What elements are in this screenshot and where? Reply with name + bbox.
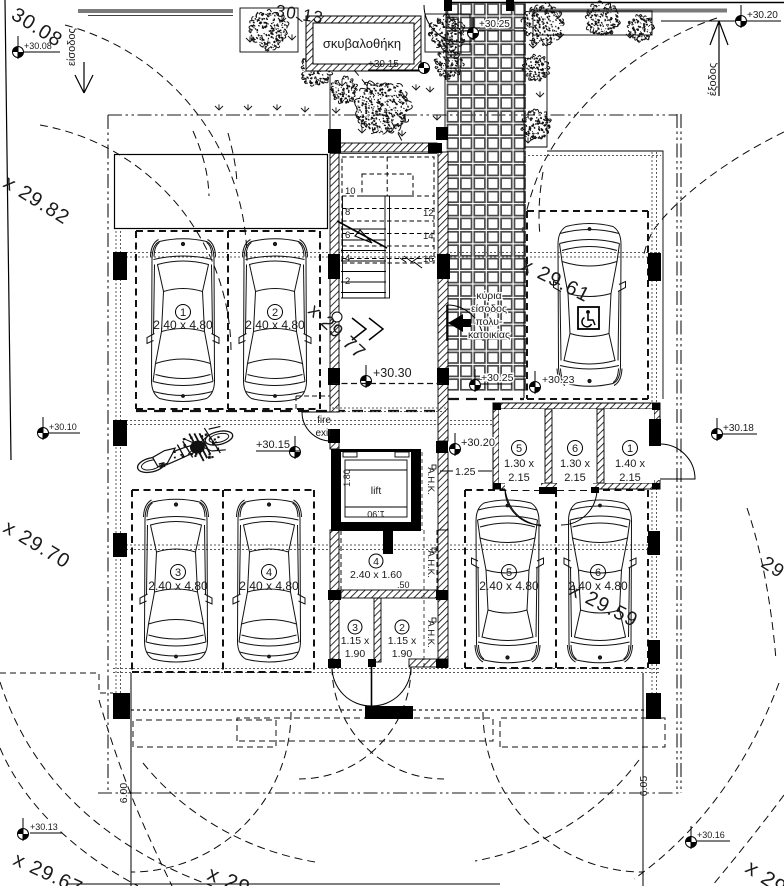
svg-text:Α.Η.Κ.: Α.Η.Κ. [425, 620, 436, 647]
svg-text:+30.10: +30.10 [49, 422, 77, 432]
svg-text:3: 3 [352, 622, 358, 634]
svg-text:2: 2 [345, 276, 350, 287]
svg-text:4: 4 [345, 253, 350, 264]
svg-text:2.40 x 4.80: 2.40 x 4.80 [153, 318, 213, 332]
svg-text:6: 6 [595, 567, 601, 579]
svg-text:+30.20: +30.20 [747, 10, 778, 21]
svg-text:+30.16: +30.16 [697, 830, 725, 840]
svg-text:6.05: 6.05 [638, 776, 650, 797]
svg-text:4: 4 [266, 567, 272, 579]
svg-text:2.40 x 4.80: 2.40 x 4.80 [148, 579, 208, 593]
svg-text:+30.13: +30.13 [30, 822, 58, 832]
svg-text:1.80: 1.80 [342, 469, 352, 487]
svg-text:2.15: 2.15 [619, 472, 640, 484]
svg-text:+30.15: +30.15 [256, 439, 290, 451]
svg-text:5: 5 [516, 443, 522, 455]
svg-text:πολυ-: πολυ- [476, 316, 503, 328]
svg-text:2.40 x 4.80: 2.40 x 4.80 [479, 579, 539, 593]
svg-text:σκυβαλοθήκη: σκυβαλοθήκη [323, 36, 401, 51]
svg-text:+30.30: +30.30 [373, 366, 412, 380]
svg-text:Α.Η.Κ.: Α.Η.Κ. [425, 550, 436, 577]
svg-text:2.15: 2.15 [508, 472, 529, 484]
svg-text:είσοδος: είσοδος [471, 303, 507, 315]
svg-text:exit: exit [315, 428, 331, 439]
svg-text:12: 12 [423, 208, 434, 219]
svg-text:6.00: 6.00 [118, 783, 130, 804]
svg-text:8: 8 [345, 207, 350, 218]
svg-text:1.25: 1.25 [455, 466, 476, 478]
svg-text:1.30 x: 1.30 x [504, 458, 534, 470]
svg-text:1.15 x: 1.15 x [341, 635, 370, 647]
svg-text:1.30 x: 1.30 x [560, 458, 590, 470]
svg-text:16: 16 [423, 254, 434, 265]
svg-text:1.90: 1.90 [392, 648, 413, 660]
svg-text:+30.18: +30.18 [723, 423, 754, 434]
svg-text:+30.15: +30.15 [368, 59, 399, 70]
svg-text:2.15: 2.15 [564, 472, 585, 484]
svg-text:+30.23: +30.23 [542, 374, 575, 386]
svg-text:1.40 x: 1.40 x [615, 458, 645, 470]
svg-text:10: 10 [345, 186, 356, 197]
svg-text:4: 4 [373, 556, 379, 568]
svg-text:+30.25: +30.25 [479, 19, 510, 30]
svg-text:5: 5 [506, 567, 512, 579]
svg-text:2.40 x 4.80: 2.40 x 4.80 [239, 579, 299, 593]
svg-text:lift: lift [371, 485, 382, 497]
svg-text:Α.Η.Κ.: Α.Η.Κ. [425, 467, 436, 494]
svg-text:κατοικίας: κατοικίας [468, 329, 510, 341]
svg-text:2.40 x 4.80: 2.40 x 4.80 [245, 318, 305, 332]
svg-text:είσοδος: είσοδος [66, 28, 78, 66]
svg-text:6: 6 [345, 230, 350, 241]
svg-text:6: 6 [572, 443, 578, 455]
svg-text:έξοδος: έξοδος [707, 63, 719, 96]
svg-text:14: 14 [423, 231, 434, 242]
svg-text:2.40 x 1.60: 2.40 x 1.60 [350, 569, 402, 581]
svg-text:1: 1 [627, 443, 633, 455]
svg-text:fire: fire [317, 415, 331, 426]
svg-text:+30.25: +30.25 [481, 372, 514, 384]
svg-text:3: 3 [175, 567, 181, 579]
svg-text:1.15 x: 1.15 x [388, 635, 417, 647]
svg-text:+30.20: +30.20 [461, 437, 495, 449]
svg-text:2: 2 [399, 622, 405, 634]
svg-text:.50: .50 [397, 580, 410, 590]
svg-text:κύρια: κύρια [476, 290, 501, 302]
svg-text:1.90: 1.90 [367, 509, 385, 519]
svg-text:1.90: 1.90 [345, 648, 366, 660]
